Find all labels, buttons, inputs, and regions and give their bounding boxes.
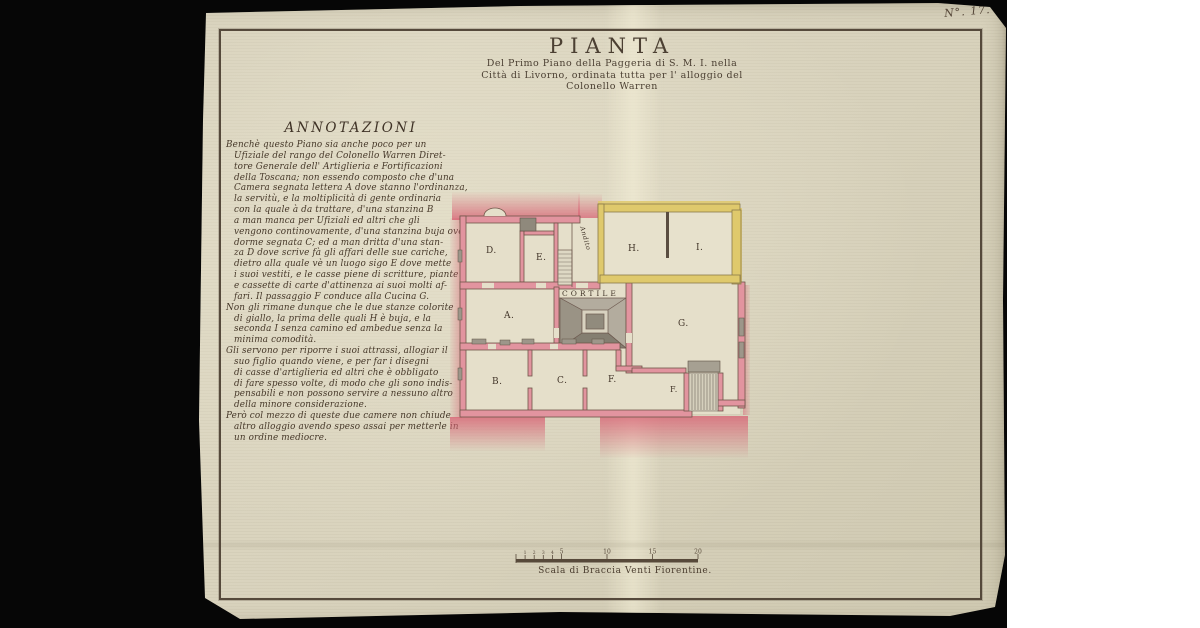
page-title: PIANTA [452,34,772,58]
subtitle-line: Città di Livorno, ordinata tutta per l' … [447,70,777,82]
room-label-h: H. [628,244,640,254]
annotation-line: seconda I senza camino ed ambedue senza … [234,324,476,335]
annotation-line: suo figlio quando viene, e per far i dis… [234,357,476,368]
annotation-line: di casse d'artiglieria ed altri che è ob… [234,368,476,379]
scale-tick-label: 1 [524,550,527,556]
annotation-line: la servitù, e la moltiplicità di gente o… [234,194,476,205]
annotation-line: minima comodità. [234,335,476,346]
scale-major-labels: 5 10 15 20 [560,549,702,556]
annotation-line: di fare spesso volte, di modo che gli so… [234,379,476,390]
annotations-heading: ANNOTAZIONI [226,120,476,136]
room-label-g: G. [678,319,689,329]
annotation-line: vengono continovamente, d'una stanzina b… [234,227,476,238]
chimney-block [520,218,536,231]
annotation-line: i suoi vestiti, e le casse piene di scri… [234,270,476,281]
room-label-e: E. [536,253,546,263]
photo-black-background: N°. 17. PIANTA Del Primo Piano della Pag… [0,0,1007,628]
annotation-line: Benchè questo Piano sia anche poco per u… [226,140,476,151]
annotation-line: della minore considerazione. [234,400,476,411]
room-label-c: C. [557,376,567,386]
scale-minor-labels: 1 2 3 4 [524,550,554,556]
annotation-line: e cassette di carte d'attinenza ai suoi … [234,281,476,292]
room-label-a: A. [503,311,514,321]
scale-tick-label: 5 [560,549,564,556]
room-label-f: F. [608,375,617,385]
annotation-line: za D dove scrive fà gli affari delle sue… [234,248,476,259]
annotations-text: Benchè questo Piano sia anche poco per u… [226,140,476,444]
annotation-line: della Toscana; non essendo composto che … [234,173,476,184]
annotation-line: di giallo, la prima delle quali H è buja… [234,314,476,325]
annotation-line: fari. Il passaggio F conduce alla Cucina… [234,292,476,303]
annotation-line: a man manca per Ufiziali ed altri che gl… [234,216,476,227]
annotation-line: Ufiziale del rango del Colonello Warren … [234,151,476,162]
annotation-line: dietro alla quale vè un luogo sigo E dov… [234,259,476,270]
subtitle-line: Colonello Warren [447,81,777,93]
room-label-b: B. [492,377,502,387]
page-subtitle: Del Primo Piano della Paggeria di S. M. … [447,58,777,93]
room-label-f2: F. [670,385,678,394]
page-number: N°. 17. [944,1,1015,20]
scanned-plan-page: N°. 17. PIANTA Del Primo Piano della Pag… [0,0,1200,628]
annotation-line: Gli servono per riporre i suoi attrassi,… [226,346,476,357]
annotation-line: Non gli rimane dunque che le due stanze … [226,303,476,314]
scale-bar-line [516,559,698,563]
annotation-line: altro alloggio avendo speso assai per me… [234,422,476,433]
scale-tick-label: 3 [542,550,545,556]
paper-sheet: N°. 17. PIANTA Del Primo Piano della Pag… [0,0,1007,628]
courtyard-label: CORTILE [562,289,619,298]
annotation-line: dorme segnata C; ed a man dritta d'una s… [234,238,476,249]
annotation-line: Camera segnata lettera A dove stanno l'o… [234,183,476,194]
annotation-line: pensabili e non possono servire a nessun… [234,389,476,400]
subtitle-line: Del Primo Piano della Paggeria di S. M. … [447,58,777,70]
room-label-d: D. [486,246,497,256]
annotation-line: con la quale à da trattare, d'una stanzi… [234,205,476,216]
annotation-line: tore Generale dell' Artiglieria e Fortif… [234,162,476,173]
annotations-block: ANNOTAZIONI Benchè questo Piano sia anch… [226,120,476,444]
scale-tick-label: 10 [603,549,611,556]
annotation-line: un ordine mediocre. [234,433,476,444]
scale-tick-label: 20 [694,549,702,556]
annotation-line: Però col mezzo di queste due camere non … [226,411,476,422]
scale-caption: Scala di Braccia Venti Fiorentine. [530,566,720,576]
scale-tick-label: 15 [649,549,657,556]
staircase-bottom-right [688,361,720,411]
floor-plan: D. E. H. I. A. G. B. C. F. F. Andito COR… [450,190,750,462]
wall-h-i-divider [666,212,669,258]
scale-tick-label: 4 [551,550,554,556]
room-label-i: I. [696,243,703,253]
scale-tick-label: 2 [533,550,536,556]
scale-bar: 1 2 3 4 5 10 15 20 [506,548,716,568]
